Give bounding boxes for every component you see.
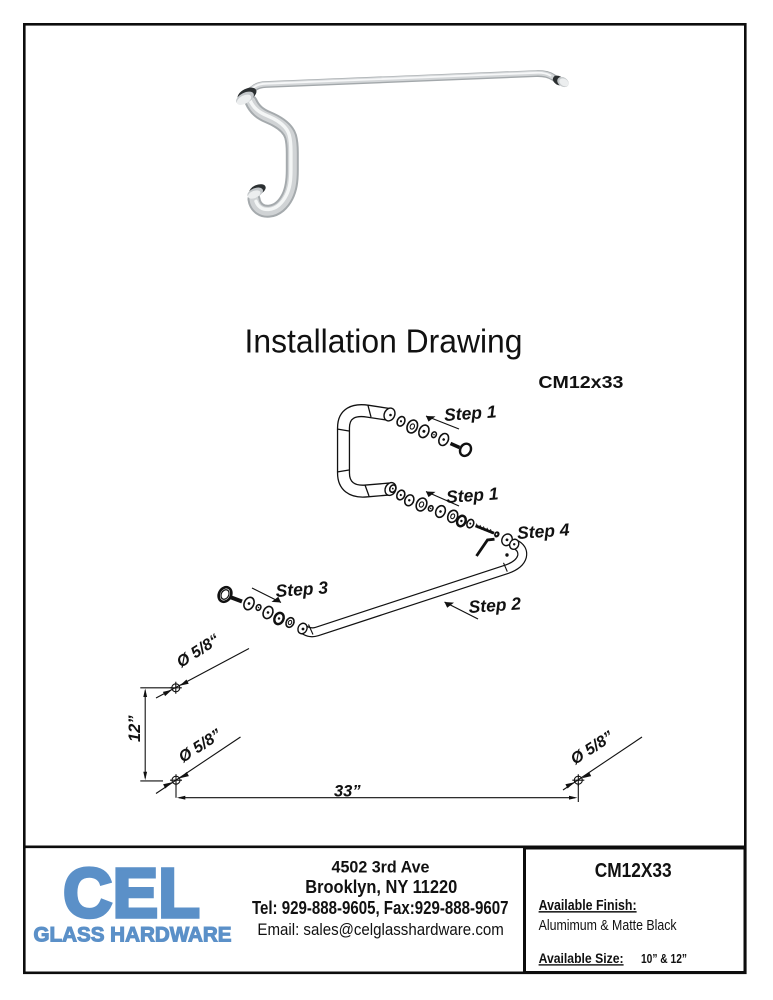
svg-text:12”: 12” — [126, 715, 144, 742]
svg-text:Step 1: Step 1 — [443, 401, 497, 425]
svg-text:10” & 12”: 10” & 12” — [641, 951, 687, 966]
svg-text:4502 3rd Ave: 4502 3rd Ave — [332, 858, 430, 877]
svg-text:CM12x33: CM12x33 — [538, 372, 623, 392]
svg-text:CEL: CEL — [63, 854, 200, 932]
svg-text:CM12X33: CM12X33 — [595, 860, 672, 882]
svg-text:Ø 5/8”: Ø 5/8” — [568, 728, 617, 768]
svg-text:Available Finish:: Available Finish: — [539, 897, 637, 914]
svg-text:Ø 5/8”: Ø 5/8” — [176, 726, 225, 766]
svg-text:Ø 5/8“: Ø 5/8“ — [174, 631, 223, 671]
svg-text:33”: 33” — [334, 783, 361, 801]
svg-text:GLASS HARDWARE: GLASS HARDWARE — [34, 924, 232, 947]
svg-text:Step 4: Step 4 — [516, 519, 570, 543]
svg-text:Installation Drawing: Installation Drawing — [245, 323, 523, 360]
svg-text:Step 2: Step 2 — [468, 593, 522, 617]
svg-text:Brooklyn, NY 11220: Brooklyn, NY 11220 — [305, 877, 457, 897]
svg-text:Available Size:: Available Size: — [539, 950, 624, 966]
svg-text:Tel: 929-888-9605, Fax:929-888: Tel: 929-888-9605, Fax:929-888-9607 — [252, 898, 509, 918]
svg-text:Alumimum & Matte Black: Alumimum & Matte Black — [539, 918, 678, 934]
svg-text:Step 3: Step 3 — [275, 577, 329, 601]
svg-text:Step 1: Step 1 — [445, 483, 499, 507]
svg-text:Email: sales@celglasshardware.: Email: sales@celglasshardware.com — [257, 921, 503, 939]
